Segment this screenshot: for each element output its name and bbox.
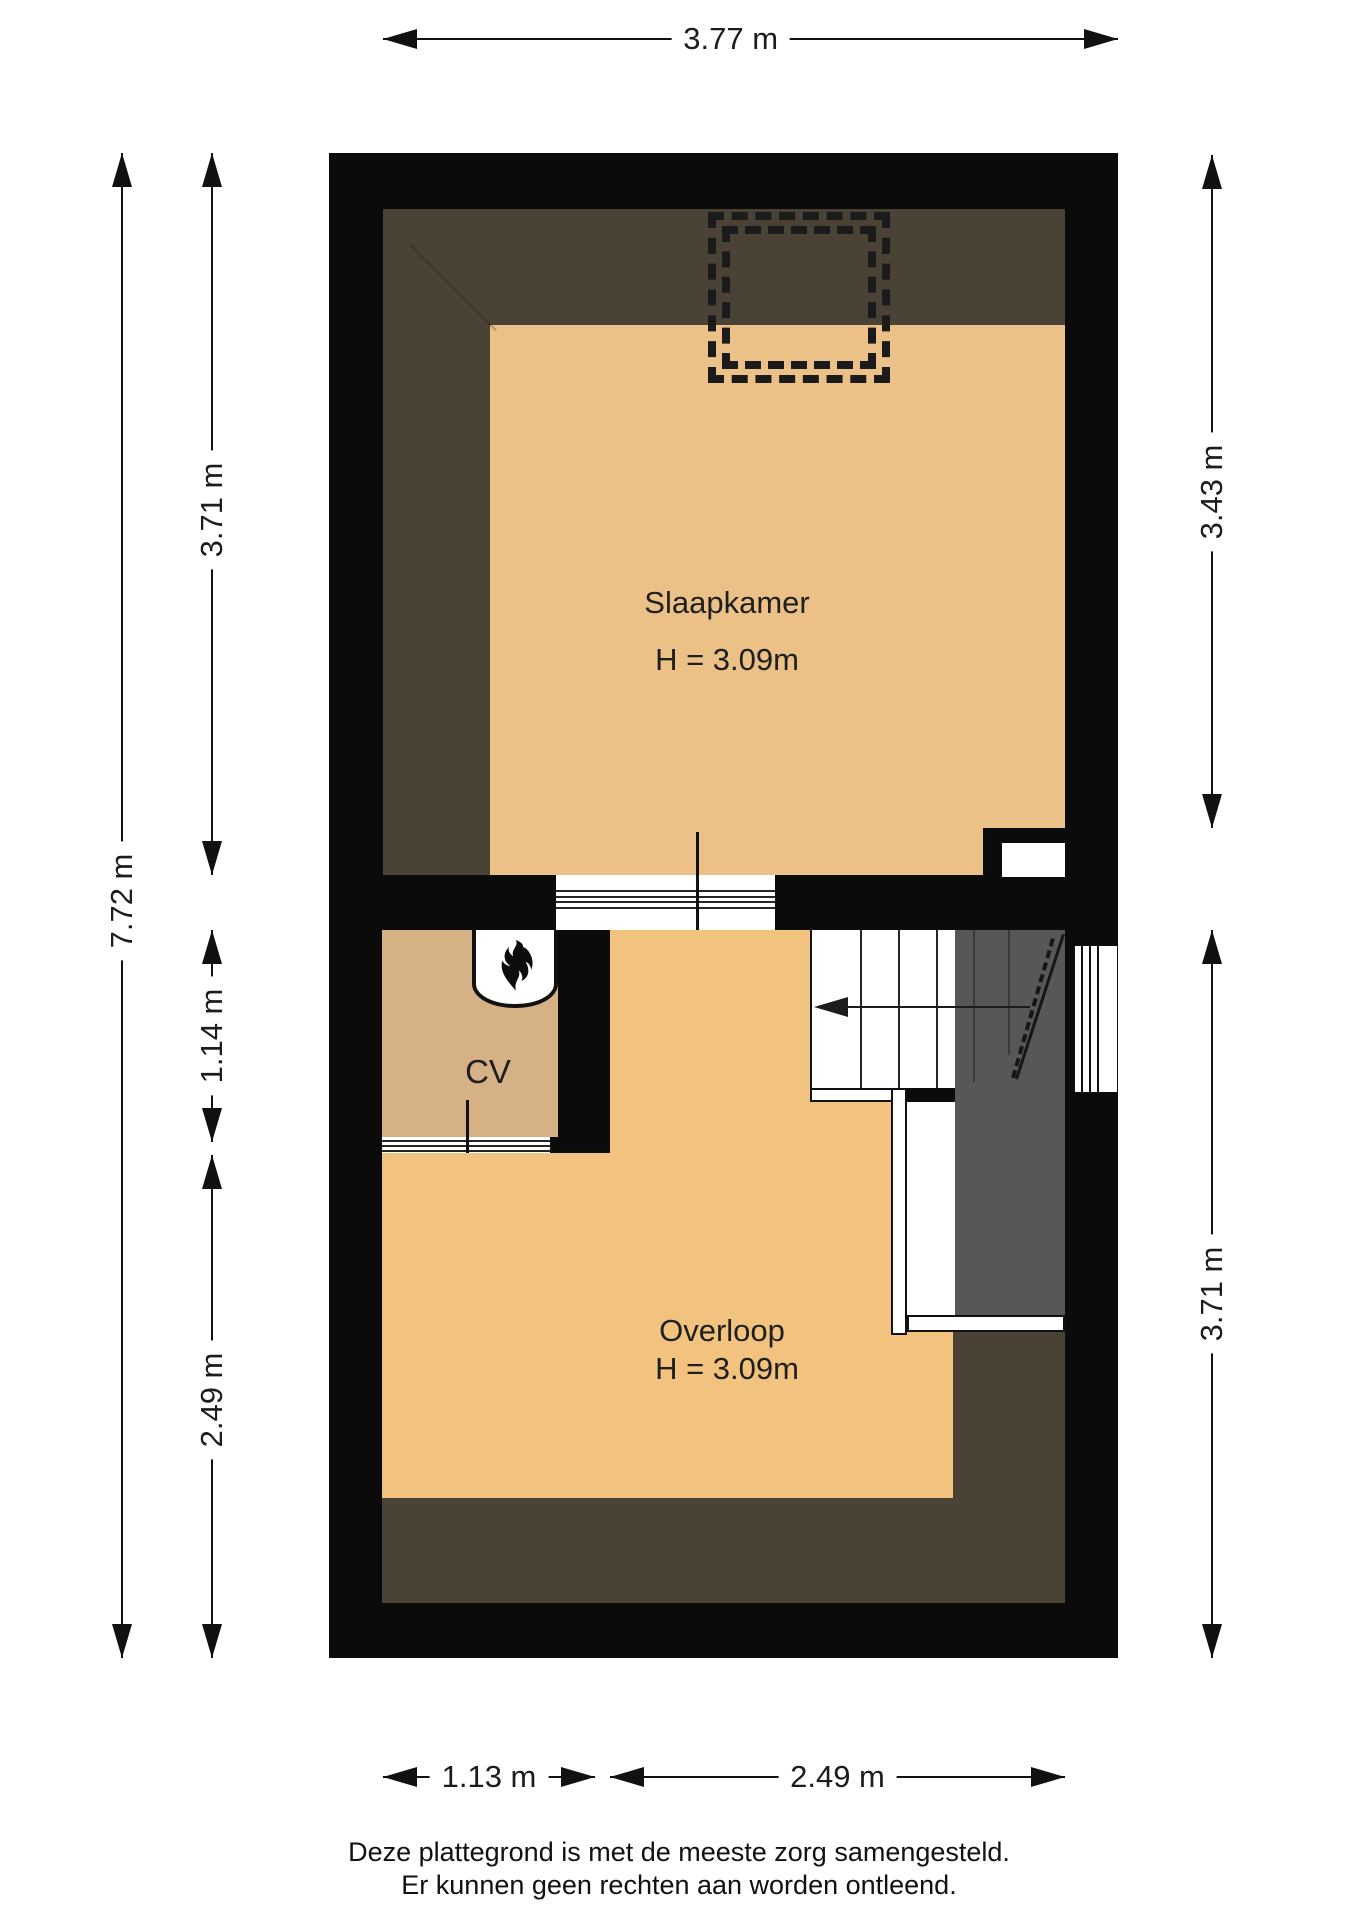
stair-tread-line-upper — [1008, 930, 1010, 1055]
room-overloop-floor — [610, 930, 810, 1498]
room-overloop-floor — [893, 1332, 955, 1498]
room-height-slaapkamer: H = 3.09m — [655, 642, 799, 678]
arrowhead-up-icon — [1202, 155, 1222, 189]
arrowhead-down-icon — [1202, 1624, 1222, 1658]
dim-label-left-middle: 1.14 m — [194, 977, 230, 1096]
stair-railing-side — [891, 1088, 907, 1335]
dim-bottom-right: 2.49 m — [610, 1766, 1065, 1788]
disclaimer-line-2: Er kunnen geen rechten aan worden ontlee… — [348, 1869, 1010, 1902]
floor-plan-page: Slaapkamer H = 3.09m CV Overloop H = 3.0… — [0, 0, 1358, 1920]
arrowhead-left-icon — [610, 1767, 644, 1787]
arrowhead-up-icon — [1202, 930, 1222, 964]
room-overloop-floor — [382, 1153, 610, 1498]
arrowhead-left-icon — [383, 1767, 417, 1787]
dim-label-left-outer: 7.72 m — [104, 842, 140, 961]
arrowhead-up-icon — [202, 153, 222, 187]
arrow-left-icon — [814, 997, 848, 1017]
arrowhead-down-icon — [202, 841, 222, 875]
room-label-cv: CV — [465, 1053, 511, 1091]
disclaimer: Deze plattegrond is met de meeste zorg s… — [348, 1836, 1010, 1902]
arrowhead-right-icon — [1031, 1767, 1065, 1787]
arrowhead-left-icon — [383, 29, 417, 49]
threshold-line — [556, 907, 775, 909]
window-cap-top — [1074, 938, 1118, 946]
threshold-line — [556, 901, 775, 903]
dim-left-outer: 7.72 m — [112, 153, 132, 1658]
threshold-line — [556, 896, 775, 898]
dim-label-right-upper: 3.43 m — [1194, 432, 1230, 551]
stairwell-white-gap — [907, 1102, 955, 1315]
dim-label-right-lower: 3.71 m — [1194, 1235, 1230, 1354]
room-overloop-floor — [810, 1102, 893, 1498]
cv-right-wall — [558, 930, 610, 1168]
overloop-low-headroom-strip — [382, 1498, 1065, 1603]
window-glazing-line — [1097, 946, 1099, 1092]
stair-railing-bottom — [907, 1315, 1065, 1332]
stair-tread-line — [898, 930, 900, 1088]
overloop-low-headroom-column — [953, 1332, 1065, 1498]
dim-bottom-left: 1.13 m — [383, 1766, 595, 1788]
arrowhead-down-icon — [112, 1624, 132, 1658]
arrowhead-up-icon — [202, 1155, 222, 1189]
threshold-line — [556, 890, 775, 892]
arrowhead-up-icon — [112, 153, 132, 187]
stair-direction-line — [846, 1006, 1030, 1008]
dim-right-upper: 3.43 m — [1202, 155, 1222, 828]
stair-railing-top — [810, 1088, 893, 1102]
arrowhead-down-icon — [202, 1108, 222, 1142]
skylight-dashed-outline-inner — [722, 226, 876, 369]
flame-icon — [494, 938, 538, 994]
dim-left-upper: 3.71 m — [202, 153, 222, 875]
dim-label-bottom-right: 2.49 m — [778, 1759, 897, 1795]
window-glazing-line — [1081, 946, 1083, 1092]
dim-label-left-upper: 3.71 m — [194, 451, 230, 570]
dim-left-lower: 2.49 m — [202, 1155, 222, 1658]
arrowhead-down-icon — [202, 1624, 222, 1658]
dim-left-middle: 1.14 m — [202, 930, 222, 1142]
room-height-overloop: H = 3.09m — [655, 1351, 799, 1387]
room-label-slaapkamer: Slaapkamer — [644, 585, 809, 621]
disclaimer-line-1: Deze plattegrond is met de meeste zorg s… — [348, 1836, 1010, 1869]
dim-right-lower: 3.71 m — [1202, 930, 1222, 1658]
room-label-overloop: Overloop — [659, 1313, 785, 1349]
dim-top: 3.77 m — [383, 28, 1118, 50]
arrowhead-up-icon — [202, 930, 222, 964]
window-cap-bottom — [1074, 1092, 1118, 1100]
window-glazing-line — [1089, 946, 1091, 1092]
dim-label-left-lower: 2.49 m — [194, 1341, 230, 1460]
arrowhead-down-icon — [1202, 794, 1222, 828]
dim-label-bottom-left: 1.13 m — [430, 1759, 549, 1795]
stair-tread-line — [860, 930, 862, 1088]
chimney-niche — [1002, 843, 1065, 877]
stair-void — [955, 930, 1065, 1315]
arrowhead-right-icon — [561, 1767, 595, 1787]
arrowhead-right-icon — [1084, 29, 1118, 49]
dim-label-top: 3.77 m — [671, 21, 790, 57]
stair-tread-line — [936, 930, 938, 1088]
